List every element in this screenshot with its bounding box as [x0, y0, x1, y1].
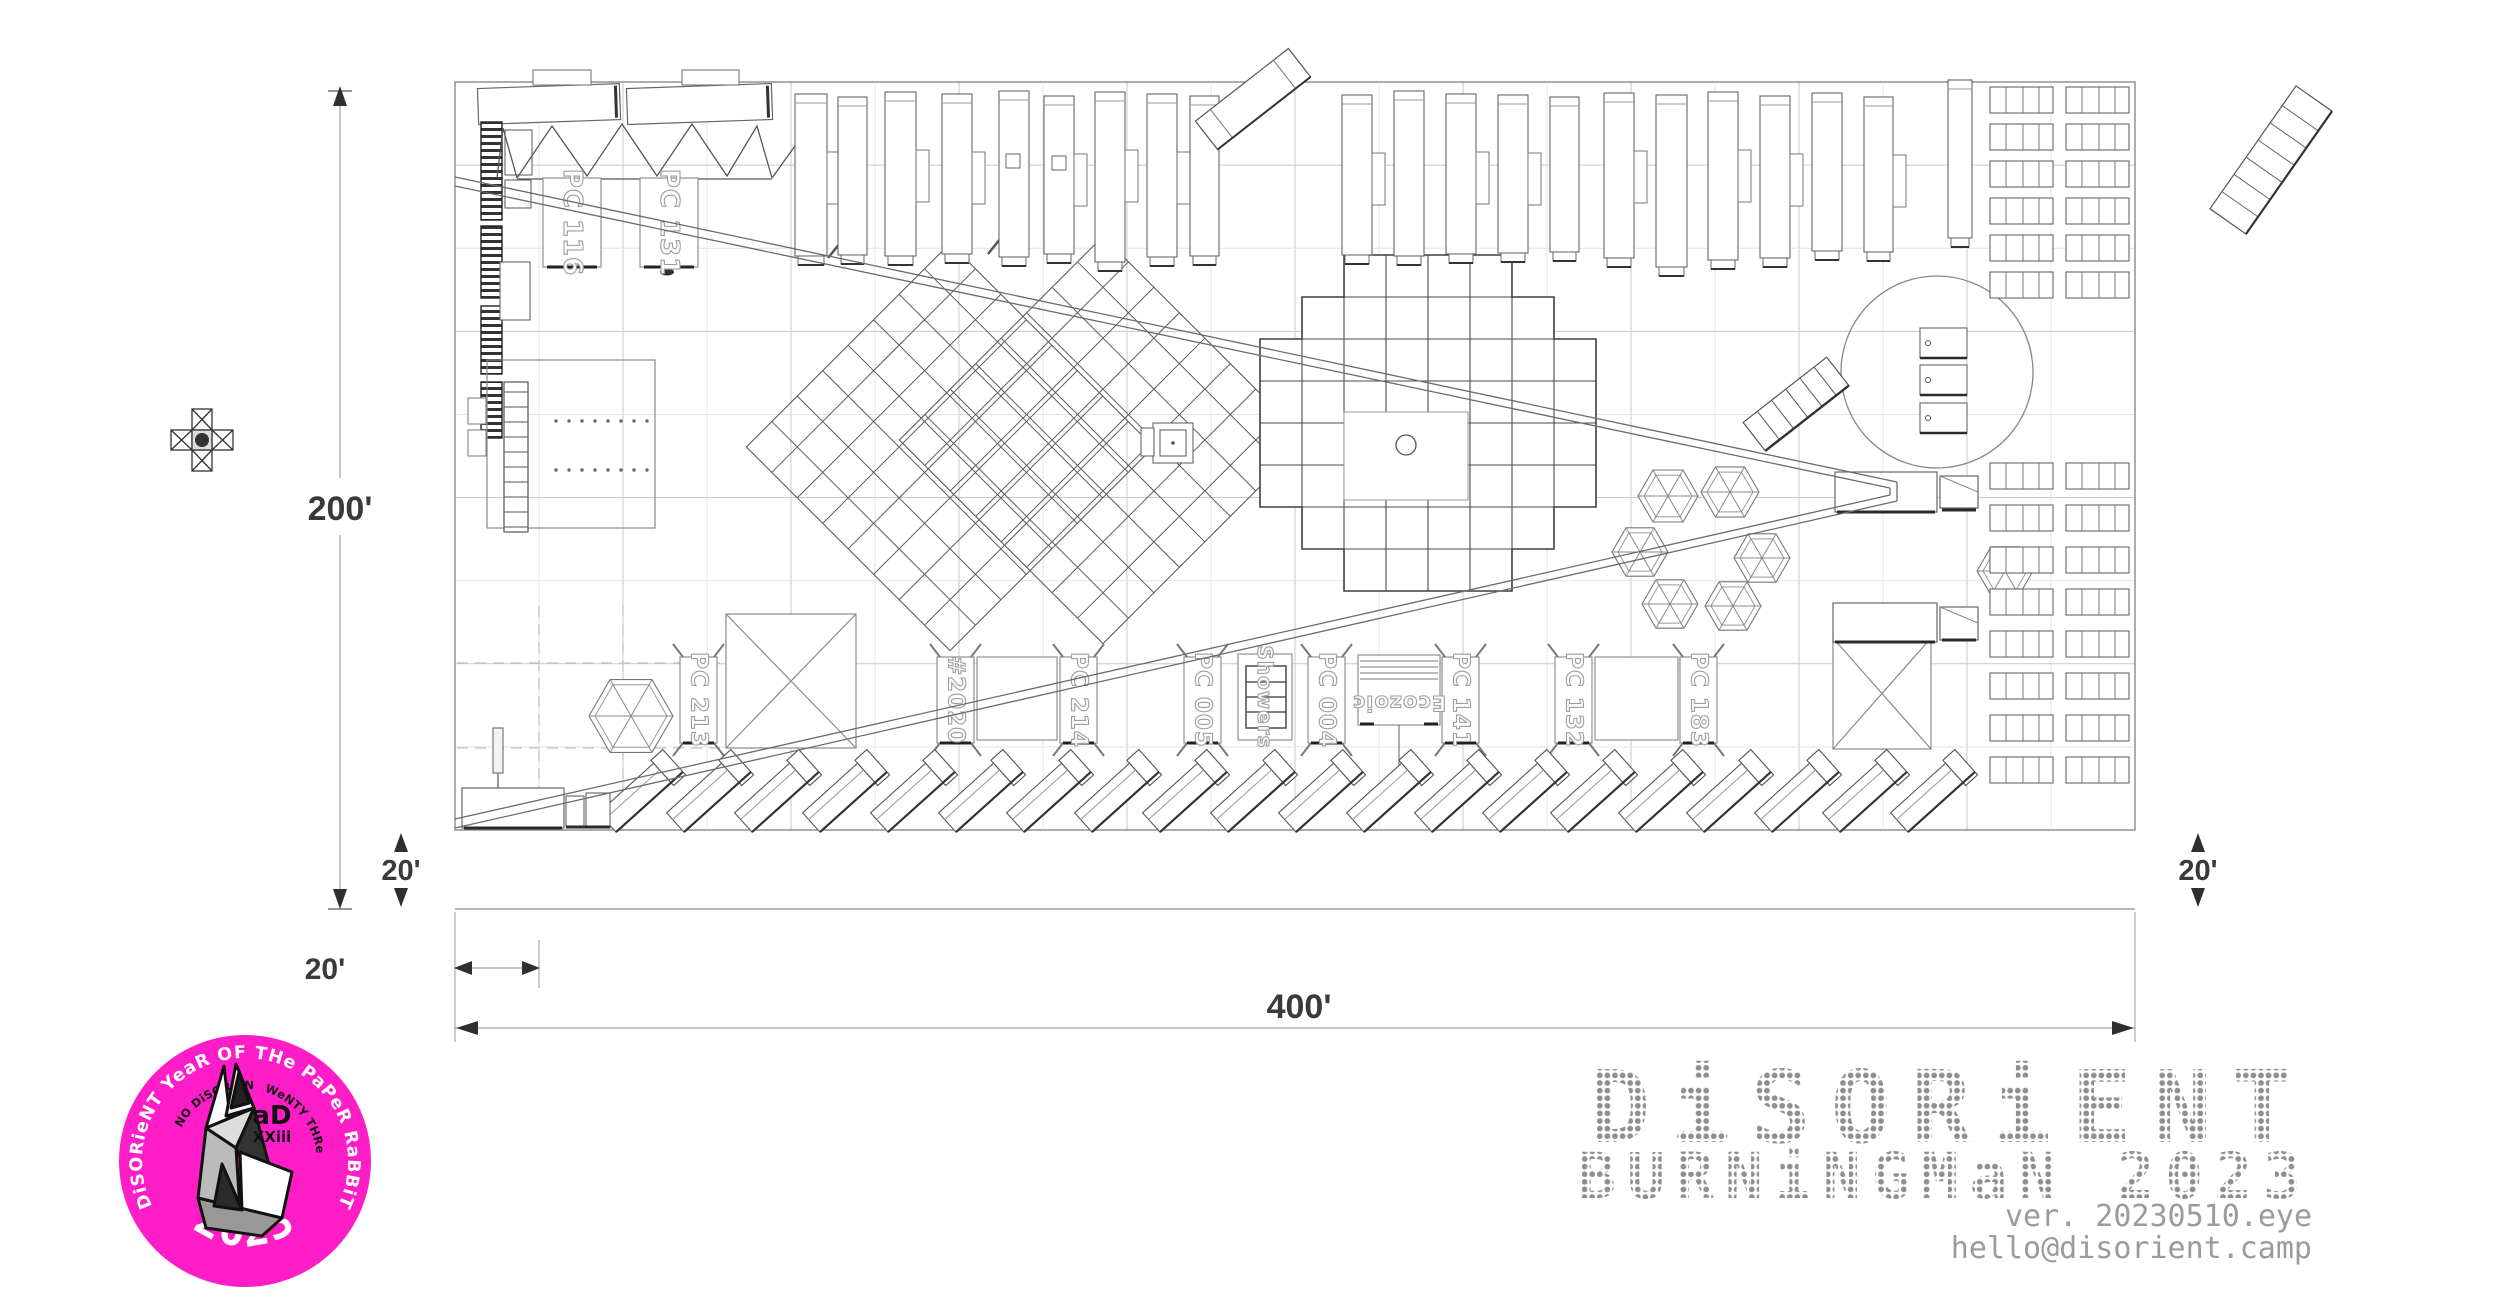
- container: #2020: [930, 644, 981, 756]
- parked-vehicle-row: [1990, 272, 2053, 298]
- svg-text:aNNO DiSORieNTi: aNNO DiSORieNTi: [0, 0, 255, 1129]
- rv: [1656, 95, 1687, 276]
- parked-vehicle-row: [2066, 505, 2129, 531]
- rv-diagonal: [1888, 750, 1978, 835]
- rv-diagonal: [1140, 750, 1230, 835]
- container: PC 183: [1673, 644, 1724, 756]
- rv: [1044, 96, 1087, 263]
- parked-vehicle-row: [2066, 757, 2129, 783]
- rv-diagonal: [1820, 750, 1910, 835]
- rv: [1446, 94, 1489, 263]
- rv: [885, 92, 929, 265]
- rv: [1948, 80, 1972, 247]
- rv-diagonal: [1276, 750, 1366, 835]
- parked-vehicle-row: [2066, 161, 2129, 187]
- container-top: PC 116: [543, 169, 601, 276]
- parked-vehicle-row: [1990, 161, 2053, 187]
- parked-vehicle-row: [2066, 673, 2129, 699]
- rv: [795, 94, 840, 265]
- parked-vehicle-row: [2066, 87, 2129, 113]
- diamond-floor: [746, 243, 1153, 650]
- parked-vehicle-row: [2066, 547, 2129, 573]
- rv: [1812, 93, 1842, 260]
- container-label: PC 004: [1314, 652, 1340, 748]
- trailer-horizontal-2: [626, 83, 772, 124]
- dim-road-right-label: 20': [2178, 855, 2217, 887]
- parked-vehicle-row: [2066, 198, 2129, 224]
- parked-vehicle-row: [2066, 715, 2129, 741]
- deck-seat-dots: [554, 419, 648, 471]
- rv-diagonal: [1548, 750, 1638, 835]
- trailer-horizontal-1: [477, 84, 620, 125]
- parked-vehicle-row: [1990, 87, 2053, 113]
- rv-row-top: [795, 80, 1972, 276]
- container: PC 214: [1053, 644, 1104, 756]
- parked-vehicle-row: [2066, 463, 2129, 489]
- ramp-striped: [1743, 357, 1849, 451]
- hex-tent: [589, 680, 673, 753]
- container-label: PC 132: [1561, 652, 1587, 748]
- rv-diagonal: [868, 750, 958, 835]
- parked-vehicle-row: [1990, 198, 2053, 224]
- ecozoic-label: Ecozoic: [1352, 691, 1447, 715]
- svg-text:TWeNTY THRee: TWeNTY THRee: [0, 0, 328, 1154]
- hex-tent: [1705, 582, 1761, 630]
- rv: [1394, 91, 1424, 265]
- wordmark-email: hello@disorient.camp: [1951, 1231, 2312, 1266]
- parked-vehicle-row: [2066, 235, 2129, 261]
- parked-vehicle-row: [1990, 547, 2053, 573]
- disorient-wordmark: DiSORiENT BURNiNGMaN 2023 ver. 20230510.…: [1578, 1049, 2312, 1266]
- badge-ad-text: aD: [252, 1101, 291, 1131]
- parking-rows: [1990, 87, 2129, 783]
- parked-vehicle-row: [2066, 272, 2129, 298]
- showers-label: Showers: [1253, 645, 1277, 748]
- hex-tent: [1701, 467, 1759, 517]
- dome-area: [1743, 276, 2033, 468]
- rv-diagonal: [1208, 750, 1298, 835]
- rv: [1095, 92, 1138, 271]
- site-plan-svg: PC 213#2020PC 214PC 005PC 004PC 141PC 13…: [0, 0, 2500, 1299]
- parked-vehicle-row: [1990, 589, 2053, 615]
- parked-vehicle-row: [1990, 673, 2053, 699]
- rv-diagonal: [1004, 750, 1094, 835]
- rv: [1498, 95, 1541, 262]
- container-label: PC 213: [686, 652, 712, 748]
- parked-vehicle-row: [2066, 589, 2129, 615]
- rv: [1760, 96, 1803, 267]
- wordmark-version: ver. 20230510.eye: [2005, 1199, 2312, 1234]
- diamond-floor: [899, 236, 1306, 643]
- rv-roof-box: [1006, 154, 1020, 168]
- rv-diagonal: [1480, 750, 1570, 835]
- rv-diagonal: [664, 750, 754, 835]
- container-label: PC 214: [1066, 652, 1092, 748]
- rv-diagonal: [1072, 750, 1162, 835]
- rv-diagonal: [1412, 750, 1502, 835]
- rv: [1604, 93, 1647, 267]
- badge-inner-right-text: TWeNTY THRee: [0, 0, 328, 1154]
- tilted-trailer-right: [2210, 86, 2332, 234]
- plaza-shade-structure: [1260, 255, 1596, 591]
- parked-vehicle-row: [1990, 124, 2053, 150]
- truck-right: [1833, 603, 1978, 642]
- roof-box-2: [682, 70, 739, 85]
- container-label: PC 005: [1190, 652, 1216, 748]
- paper-rabbit-badge: DiSORieNT YeaR OF THe PaPeR RaBBiT aNNO …: [0, 0, 371, 1287]
- tower-side-boxes: [500, 130, 532, 320]
- parked-vehicle-row: [1990, 757, 2053, 783]
- rv-diagonal: [1344, 750, 1434, 835]
- parked-vehicle-row: [2066, 124, 2129, 150]
- parked-vehicle-row: [1990, 715, 2053, 741]
- container-label: PC 183: [1686, 652, 1712, 748]
- rv-diagonal: [800, 750, 890, 835]
- parked-vehicle-row: [2066, 631, 2129, 657]
- container: PC 213: [673, 644, 724, 756]
- container: PC 005: [1177, 644, 1228, 756]
- rv: [1864, 97, 1906, 261]
- ecozoic-unit: Ecozoic: [1352, 655, 1447, 766]
- rv-diagonal: [1752, 750, 1842, 835]
- badge-xxiii-text: XXiii: [253, 1128, 292, 1146]
- rv-diagonal: [1684, 750, 1774, 835]
- hex-tent: [1638, 470, 1698, 522]
- dim-width-label: 400': [1267, 988, 1332, 1026]
- windmill-tower-icon: [171, 409, 233, 471]
- showers-unit: Showers: [1238, 645, 1292, 748]
- parked-vehicle-row: [1990, 631, 2053, 657]
- dim-setback-label: 20': [305, 953, 346, 986]
- rv: [838, 97, 867, 264]
- rv-diagonal: [1616, 750, 1706, 835]
- truck-apex: [1835, 472, 1978, 512]
- container: PC 132: [1548, 644, 1599, 756]
- roof-box-1: [533, 70, 591, 85]
- rv: [1147, 94, 1190, 266]
- rv: [999, 91, 1029, 266]
- container: PC 004: [1301, 644, 1352, 756]
- badge-inner-left-text: aNNO DiSORieNTi: [0, 0, 255, 1129]
- hex-tent: [1734, 534, 1790, 582]
- parked-vehicle-row: [1990, 235, 2053, 261]
- dome-trailers: [1920, 328, 1967, 433]
- small-utility-unit: [1141, 423, 1193, 463]
- dim-height-label: 200': [308, 490, 373, 528]
- hex-tent: [1642, 580, 1698, 628]
- camp-map-page: PC 213#2020PC 214PC 005PC 004PC 141PC 13…: [0, 0, 2500, 1299]
- container-label: PC 141: [1448, 652, 1474, 748]
- parked-vehicle-row: [1990, 463, 2053, 489]
- parked-vehicle-row: [1990, 505, 2053, 531]
- rv-roof-box: [1052, 156, 1066, 170]
- dim-road-left-label: 20': [381, 855, 420, 887]
- rv: [1550, 97, 1579, 261]
- striped-towers: [481, 122, 502, 438]
- container-label: #2020: [943, 656, 969, 744]
- rv: [942, 94, 985, 263]
- rv-row-diagonal: [596, 750, 1978, 835]
- rv: [1708, 92, 1751, 269]
- container-label: PC 116: [557, 169, 587, 276]
- rv-diagonal: [936, 750, 1026, 835]
